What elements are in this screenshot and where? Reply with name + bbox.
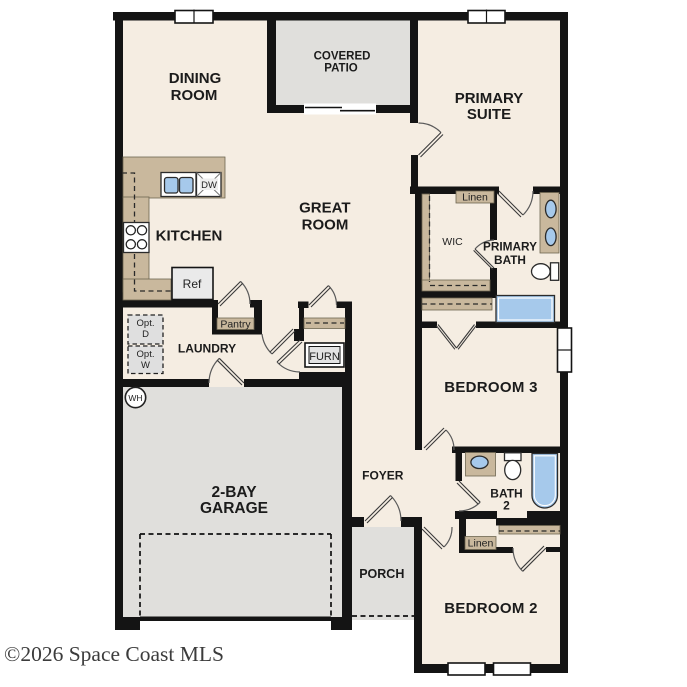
- svg-text:2: 2: [503, 499, 510, 513]
- svg-text:Pantry: Pantry: [220, 319, 251, 331]
- svg-text:KITCHEN: KITCHEN: [156, 228, 223, 245]
- svg-text:BATH: BATH: [494, 253, 526, 267]
- svg-text:FOYER: FOYER: [362, 469, 404, 483]
- svg-text:BEDROOM 3: BEDROOM 3: [444, 379, 538, 396]
- svg-text:Ref: Ref: [183, 277, 202, 291]
- svg-text:FURN: FURN: [309, 351, 340, 363]
- svg-text:DW: DW: [201, 180, 217, 191]
- svg-text:COVERED: COVERED: [314, 51, 371, 63]
- svg-text:LAUNDRY: LAUNDRY: [178, 342, 236, 356]
- svg-text:GREAT: GREAT: [299, 200, 350, 217]
- svg-text:GARAGE: GARAGE: [200, 500, 268, 517]
- svg-text:PATIO: PATIO: [324, 63, 357, 75]
- svg-text:©2026 Space Coast MLS: ©2026 Space Coast MLS: [4, 642, 224, 666]
- svg-text:Linen: Linen: [468, 538, 494, 550]
- svg-text:W: W: [141, 360, 150, 371]
- svg-text:PRIMARY: PRIMARY: [483, 240, 537, 254]
- svg-text:2-BAY: 2-BAY: [211, 484, 257, 501]
- svg-text:D: D: [142, 329, 149, 340]
- svg-text:PRIMARY: PRIMARY: [455, 90, 524, 107]
- svg-text:Linen: Linen: [462, 192, 488, 204]
- svg-text:DINING: DINING: [169, 70, 222, 87]
- svg-text:Opt.: Opt.: [137, 318, 155, 329]
- svg-text:PORCH: PORCH: [359, 567, 404, 581]
- svg-text:ROOM: ROOM: [302, 217, 349, 234]
- svg-text:ROOM: ROOM: [171, 87, 218, 104]
- svg-text:SUITE: SUITE: [467, 106, 511, 123]
- svg-text:Opt.: Opt.: [137, 349, 155, 360]
- svg-text:WH: WH: [128, 393, 142, 403]
- svg-text:WIC: WIC: [442, 236, 463, 248]
- svg-text:BEDROOM 2: BEDROOM 2: [444, 600, 538, 617]
